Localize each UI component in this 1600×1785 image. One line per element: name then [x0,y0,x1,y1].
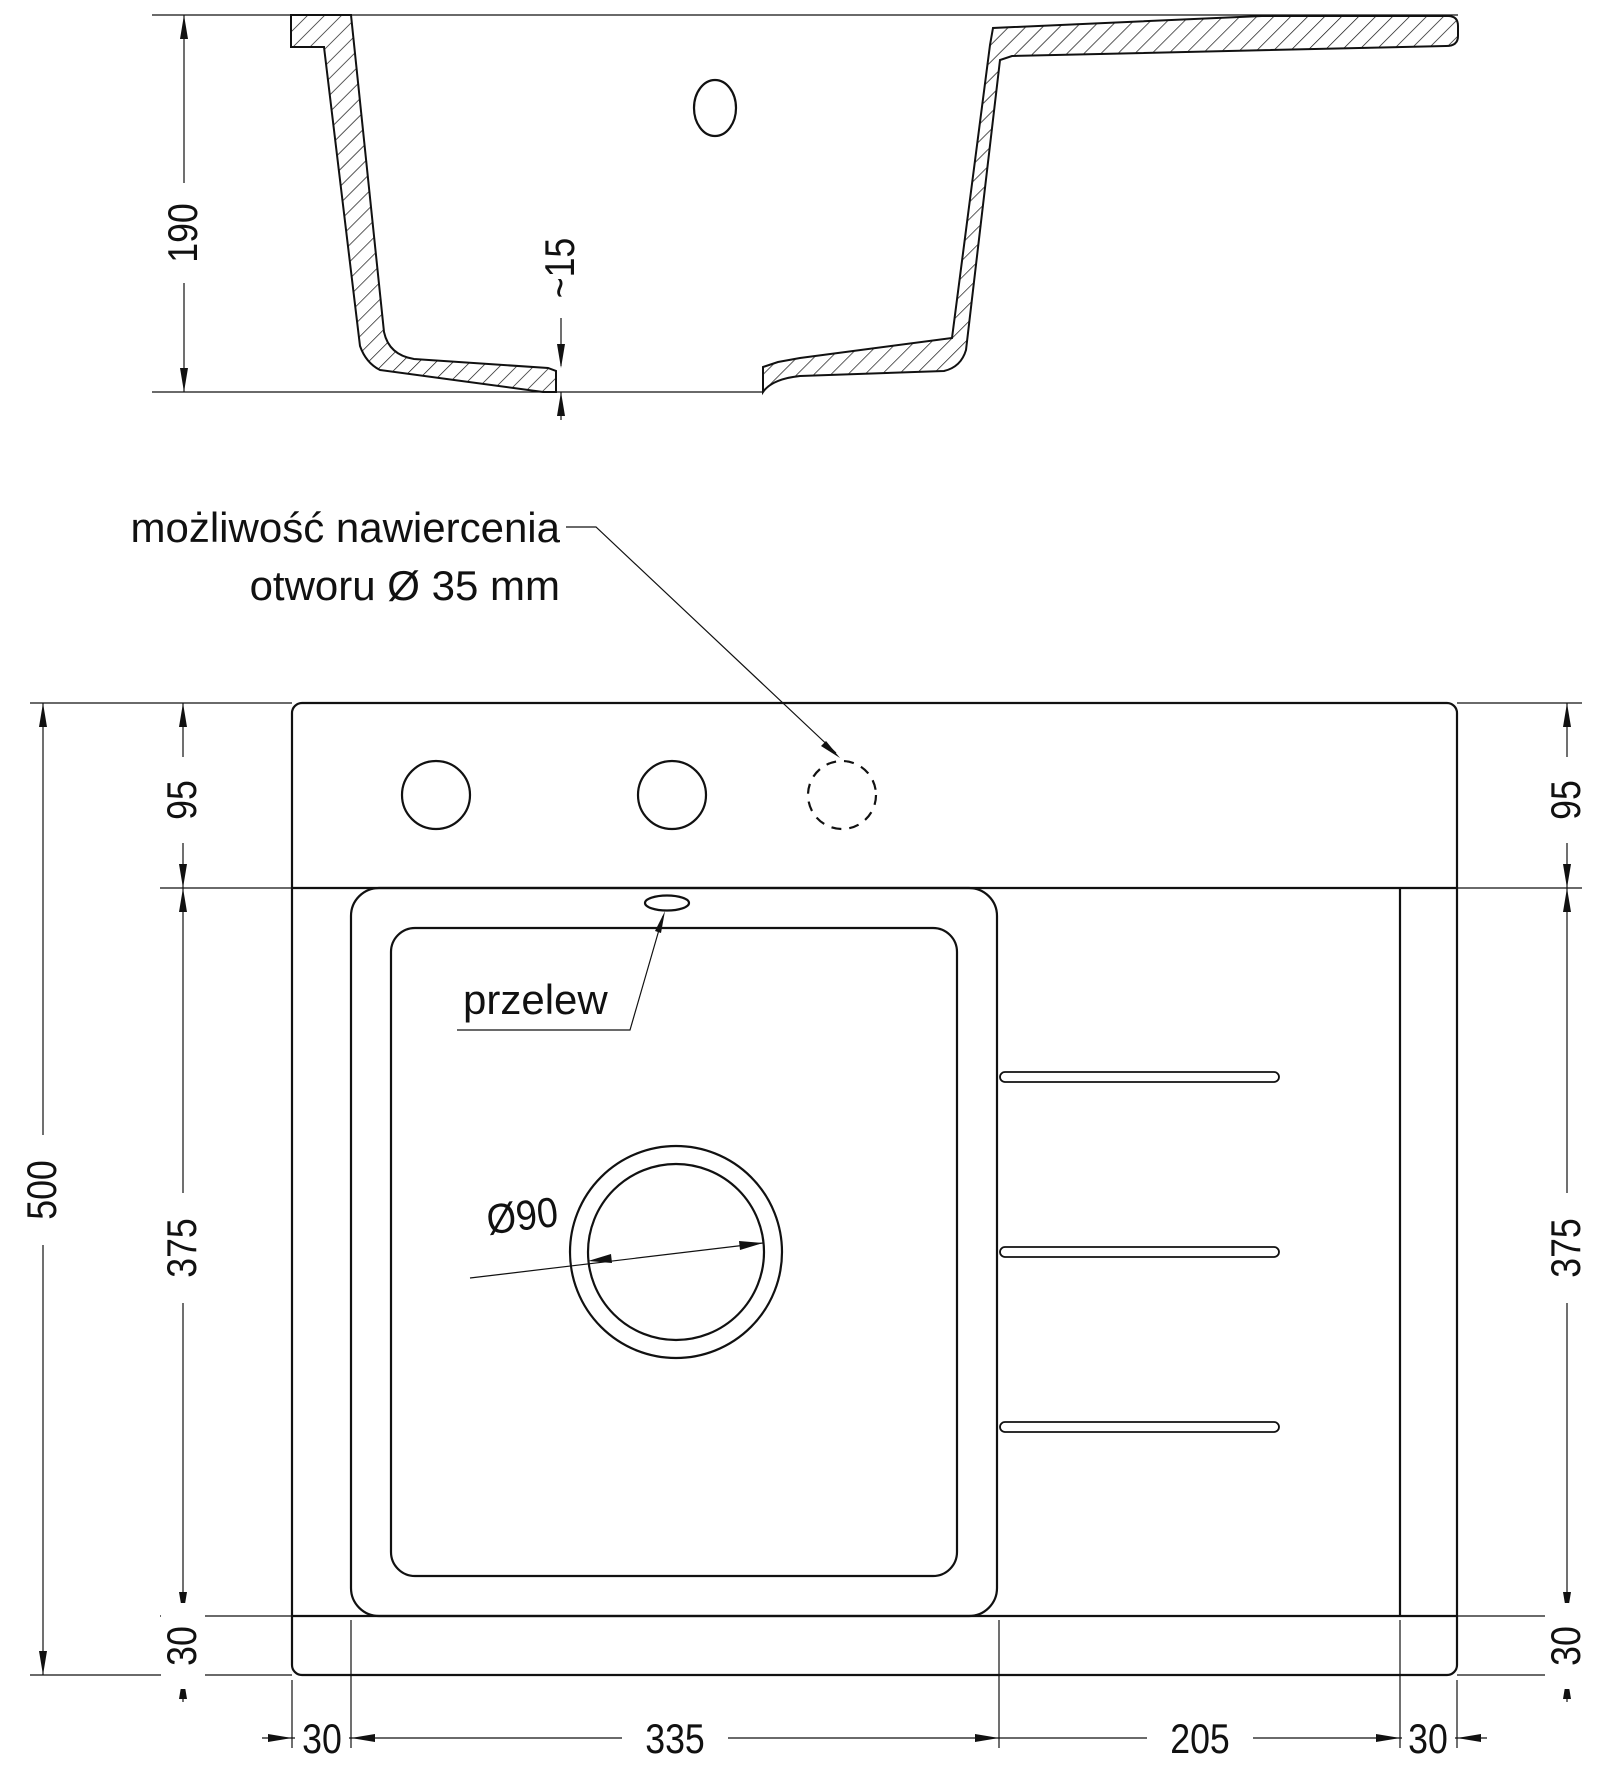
drainer-rib-3 [1000,1422,1279,1432]
dim-30-bottom-left-label: 30 [302,1716,342,1762]
dim-500-label: 500 [19,1160,65,1220]
dim-95-left-label: 95 [159,780,205,820]
drill-note: możliwość nawiercenia otworu Ø 35 mm [131,504,841,758]
technical-drawing-page: 190 ~15 możliwość nawiercenia otworu Ø 3… [0,0,1600,1785]
section-left-wall [291,15,556,392]
drill-note-line1: możliwość nawiercenia [131,504,561,551]
drain-arrow-right [739,1241,763,1250]
bowl-inner [391,928,957,1576]
sink-outline [292,703,1457,1675]
overflow-label: przelew [463,976,608,1023]
overflow-hole [645,896,689,911]
drawing-canvas: 190 ~15 możliwość nawiercenia otworu Ø 3… [0,0,1600,1785]
overflow-arrow [655,911,665,933]
dims-left: 500 95 375 30 [19,703,205,1702]
faucet-hole-2 [638,761,706,829]
dim-190-label: 190 [160,203,206,263]
dim-335-label: 335 [645,1716,705,1762]
section-view: 190 ~15 [152,15,1458,420]
drill-note-line2: otworu Ø 35 mm [250,562,560,609]
section-right-wall-drainer [763,16,1458,392]
dim-205-label: 205 [1170,1716,1230,1762]
dims-bottom: 30 335 205 30 [262,1620,1487,1763]
dims-right: 95 375 30 [1543,703,1589,1702]
dim-95-right-label: 95 [1543,780,1589,820]
drill-note-arrow [821,741,840,758]
drain-outer-circle [570,1146,782,1358]
faucet-hole-1 [402,761,470,829]
dim-375-right-label: 375 [1543,1218,1589,1278]
dim-15-arrow-up [557,392,565,416]
dim-30-left-label: 30 [159,1626,205,1666]
drainer-rib-1 [1000,1072,1279,1082]
drain-arrow-left [588,1254,612,1263]
drainer-rib-2 [1000,1247,1279,1257]
bowl-outer [351,888,997,1616]
dim-190-arrow-bottom [180,368,188,392]
dim-15-arrow-down [557,344,565,368]
drain-diameter-label: Ø90 [484,1189,561,1244]
section-faucet-hole [694,80,736,136]
dim-15-label: ~15 [537,238,583,299]
drill-note-leader [566,527,836,753]
dim-375-left-label: 375 [159,1218,205,1278]
dim-190-arrow-top [180,15,188,39]
faucet-hole-optional-dashed [808,761,876,829]
dim-30-bottom-right-label: 30 [1408,1716,1448,1762]
drain-inner-circle [588,1164,764,1340]
dim-30-right-label: 30 [1543,1626,1589,1666]
drain-dim-line [470,1243,763,1278]
top-view: przelew Ø90 [30,703,1582,1675]
